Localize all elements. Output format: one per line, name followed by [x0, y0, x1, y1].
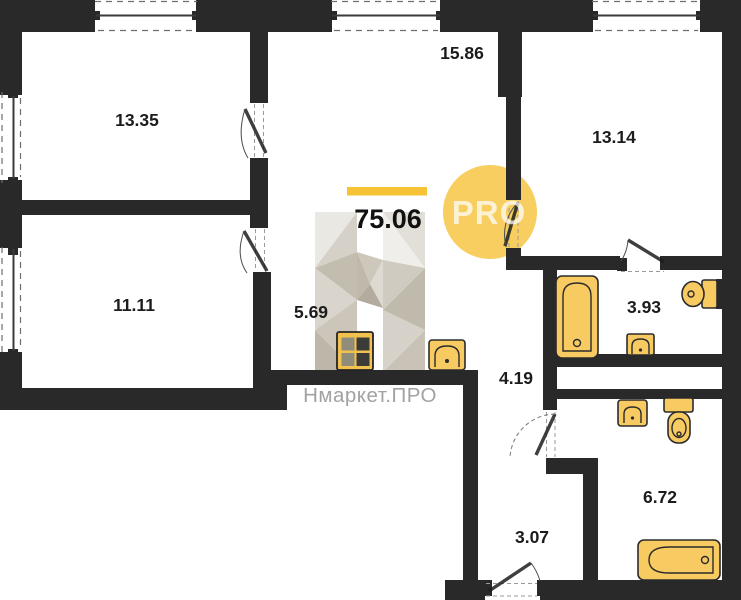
sink-icon-bathroom-large [618, 400, 647, 426]
room-area-label: 3.07 [515, 527, 549, 547]
bathtub-icon-large [638, 540, 720, 580]
sink-icon-bathroom-small [627, 334, 654, 355]
toilet-icon-bathroom-large [664, 398, 693, 443]
bathtub-icon-small [556, 276, 598, 358]
room-area-label: 15.86 [440, 43, 484, 63]
door-bedroom-bottom-left [240, 229, 267, 273]
window-top-left [95, 2, 197, 31]
floor-plan-canvas: 75.06 PRO 13.35 15.86 13.14 11.11 5.69 3… [0, 0, 741, 600]
window-top-center [331, 2, 441, 31]
watermark-text: Нмаркет.ПРО [303, 384, 437, 407]
door-bedroom-top-left [241, 104, 266, 158]
floor-plan: 75.06 PRO 13.35 15.86 13.14 11.11 5.69 3… [0, 0, 741, 600]
pro-badge-label: PRO [452, 194, 527, 231]
room-area-label: 13.35 [115, 110, 159, 130]
total-area-label: 75.06 [354, 204, 422, 234]
toilet-icon-bathroom-small [682, 280, 717, 308]
room-area-label: 4.19 [499, 368, 533, 388]
door-bathroom-small [621, 240, 664, 272]
room-area-label: 6.72 [643, 487, 677, 507]
sink-icon-kitchen [429, 340, 465, 370]
room-area-label: 3.93 [627, 297, 661, 317]
window-left-lower [2, 247, 21, 353]
room-area-label: 13.14 [592, 127, 636, 147]
entrance-door [486, 563, 540, 596]
door-bathroom-large [510, 412, 555, 457]
room-area-label: 11.11 [113, 295, 155, 315]
room-area-label: 5.69 [294, 302, 328, 322]
window-top-right [592, 2, 701, 31]
window-left-upper [2, 92, 21, 183]
total-area-underline [347, 187, 427, 196]
stove-icon [337, 332, 373, 370]
